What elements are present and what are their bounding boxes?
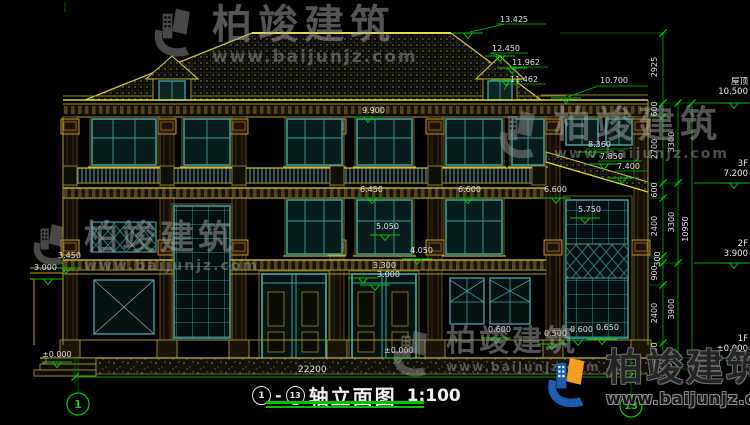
dim-dormer-eave: 11.962	[512, 59, 540, 67]
dim-f3-head: 9.900	[362, 107, 385, 115]
dim-balcony-center: 6.450	[360, 186, 383, 194]
chain-600a: 600	[651, 91, 659, 127]
dim-plinth-d: 0.650	[596, 324, 619, 332]
dim-wing-eave: 7.400	[617, 163, 640, 171]
brand-name: 柏竣建筑	[606, 349, 750, 386]
chain-900: 900	[651, 255, 659, 291]
level-2f-name: 2F	[702, 240, 748, 249]
dim-wing-sill: 5.750	[578, 206, 601, 214]
dim-plinth-c: 0.600	[570, 326, 593, 334]
dim-ridge: 13.425	[500, 16, 528, 24]
level-3f-name: 3F	[702, 160, 748, 169]
title-underline-bottom	[266, 406, 424, 408]
level-roof-value: 10.500	[702, 88, 748, 97]
dim-f2-sill: 5.050	[376, 223, 399, 231]
brand-url: www.baijunjz.com	[606, 391, 750, 407]
chain-2925: 2925	[651, 49, 659, 85]
chain-3300b: 3300	[668, 204, 676, 240]
chain-2400a: 2400	[651, 208, 659, 244]
level-1f-name: 1F	[702, 335, 748, 344]
brand-logo-icon	[542, 349, 596, 417]
dim-balcony-right-b: 6.600	[544, 186, 567, 194]
chain-2700: 2700	[651, 131, 659, 167]
chain-3300a: 3300	[668, 124, 676, 160]
chain-3900: 3900	[668, 291, 676, 327]
dim-ground-center: ±0.000	[384, 347, 414, 355]
dim-balcony-right-a: 6.600	[458, 186, 481, 194]
dim-porch-top: 3.450	[58, 252, 81, 260]
dim-door-head-a: 3.300	[373, 262, 396, 270]
dim-door-head-b: 3.000	[377, 271, 400, 279]
cad-elevation-canvas: 13.425 12.450 11.962 11.462 10.700 9.900…	[0, 0, 750, 425]
dim-dormer-sill: 11.462	[510, 76, 538, 84]
dim-plinth-a: 0.600	[488, 326, 511, 334]
level-3f-value: 7.200	[702, 170, 748, 179]
dim-main-eave: 10.700	[600, 77, 628, 85]
dim-wing-mid: 7.850	[600, 153, 623, 161]
axis-bubble-1: 1	[74, 398, 82, 411]
dim-ground-left: ±0.000	[42, 351, 72, 359]
brand-mark: 柏竣建筑 www.baijunjz.com	[542, 349, 750, 417]
dim-dormer-ridge: 12.450	[492, 45, 520, 53]
dim-wing-ridge: 8.360	[588, 141, 611, 149]
chain-total-10950: 10950	[682, 211, 690, 247]
chain-2400b: 2400	[651, 295, 659, 331]
title-underline-top	[266, 401, 424, 404]
level-roof-name: 屋顶	[702, 78, 748, 87]
dim-f2-lower: 4.050	[410, 247, 433, 255]
level-2f-value: 3.900	[702, 250, 748, 259]
dim-porch-level: 3.000	[34, 264, 57, 272]
dim-plinth-b: 0.500	[544, 330, 567, 338]
dim-total-width: 22200	[298, 366, 327, 375]
chain-600b: 600	[651, 172, 659, 208]
